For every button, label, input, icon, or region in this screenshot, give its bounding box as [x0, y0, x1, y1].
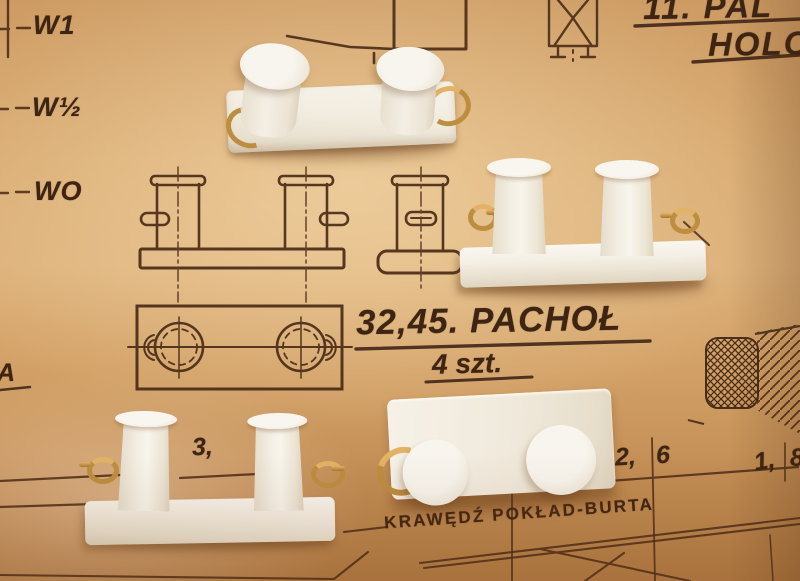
- corner-note-line1: 11. PAL: [643, 0, 774, 27]
- bollard-post: [250, 413, 306, 512]
- side-view-drawing: [378, 167, 462, 290]
- left-edge-label: A: [0, 359, 15, 388]
- brass-eyelet: [670, 208, 700, 234]
- waterline-label-w0: WO: [34, 176, 83, 207]
- fairlead-drawing: [549, 0, 597, 61]
- bollard-post: [231, 39, 312, 143]
- bollard-post: [372, 45, 446, 140]
- brass-eyelet: [87, 457, 119, 484]
- dimension-mark-5: 8: [790, 444, 800, 473]
- brass-pin: [79, 462, 91, 467]
- dimension-mark-3: 6: [655, 441, 670, 471]
- post-stem: [118, 419, 172, 511]
- part-title: 32,45. PACHOŁ: [356, 299, 622, 344]
- bollard-post: [116, 410, 175, 511]
- bollard-part-bottom-center: [373, 385, 633, 528]
- photo-canvas: W1 W½ WO A 11. PAL HOLO 32,45. PACHOŁ 4 …: [0, 0, 800, 581]
- post-cap: [595, 160, 660, 179]
- bollard-post: [598, 160, 656, 256]
- bollard-post: [490, 158, 548, 254]
- post-cap: [487, 158, 552, 177]
- front-view-drawing: [140, 167, 348, 302]
- bollard-part-top: [224, 46, 461, 162]
- plan-view-drawing: [128, 306, 352, 389]
- bollard-part-bottom-left: [85, 405, 341, 547]
- post-stem: [252, 422, 303, 512]
- section-hatch: [688, 324, 800, 434]
- corner-note-line2: HOLO: [708, 24, 800, 64]
- bollard-part-right: [458, 158, 714, 300]
- brass-pin: [331, 466, 345, 471]
- waterline-label-whalf: W½: [32, 92, 82, 123]
- post-stem: [492, 167, 545, 254]
- post-stem: [600, 169, 653, 256]
- part-quantity: 4 szt.: [432, 347, 503, 381]
- waterline-ticks: [0, 0, 30, 193]
- brass-pin: [660, 213, 672, 218]
- waterline-label-w1: W1: [33, 10, 76, 41]
